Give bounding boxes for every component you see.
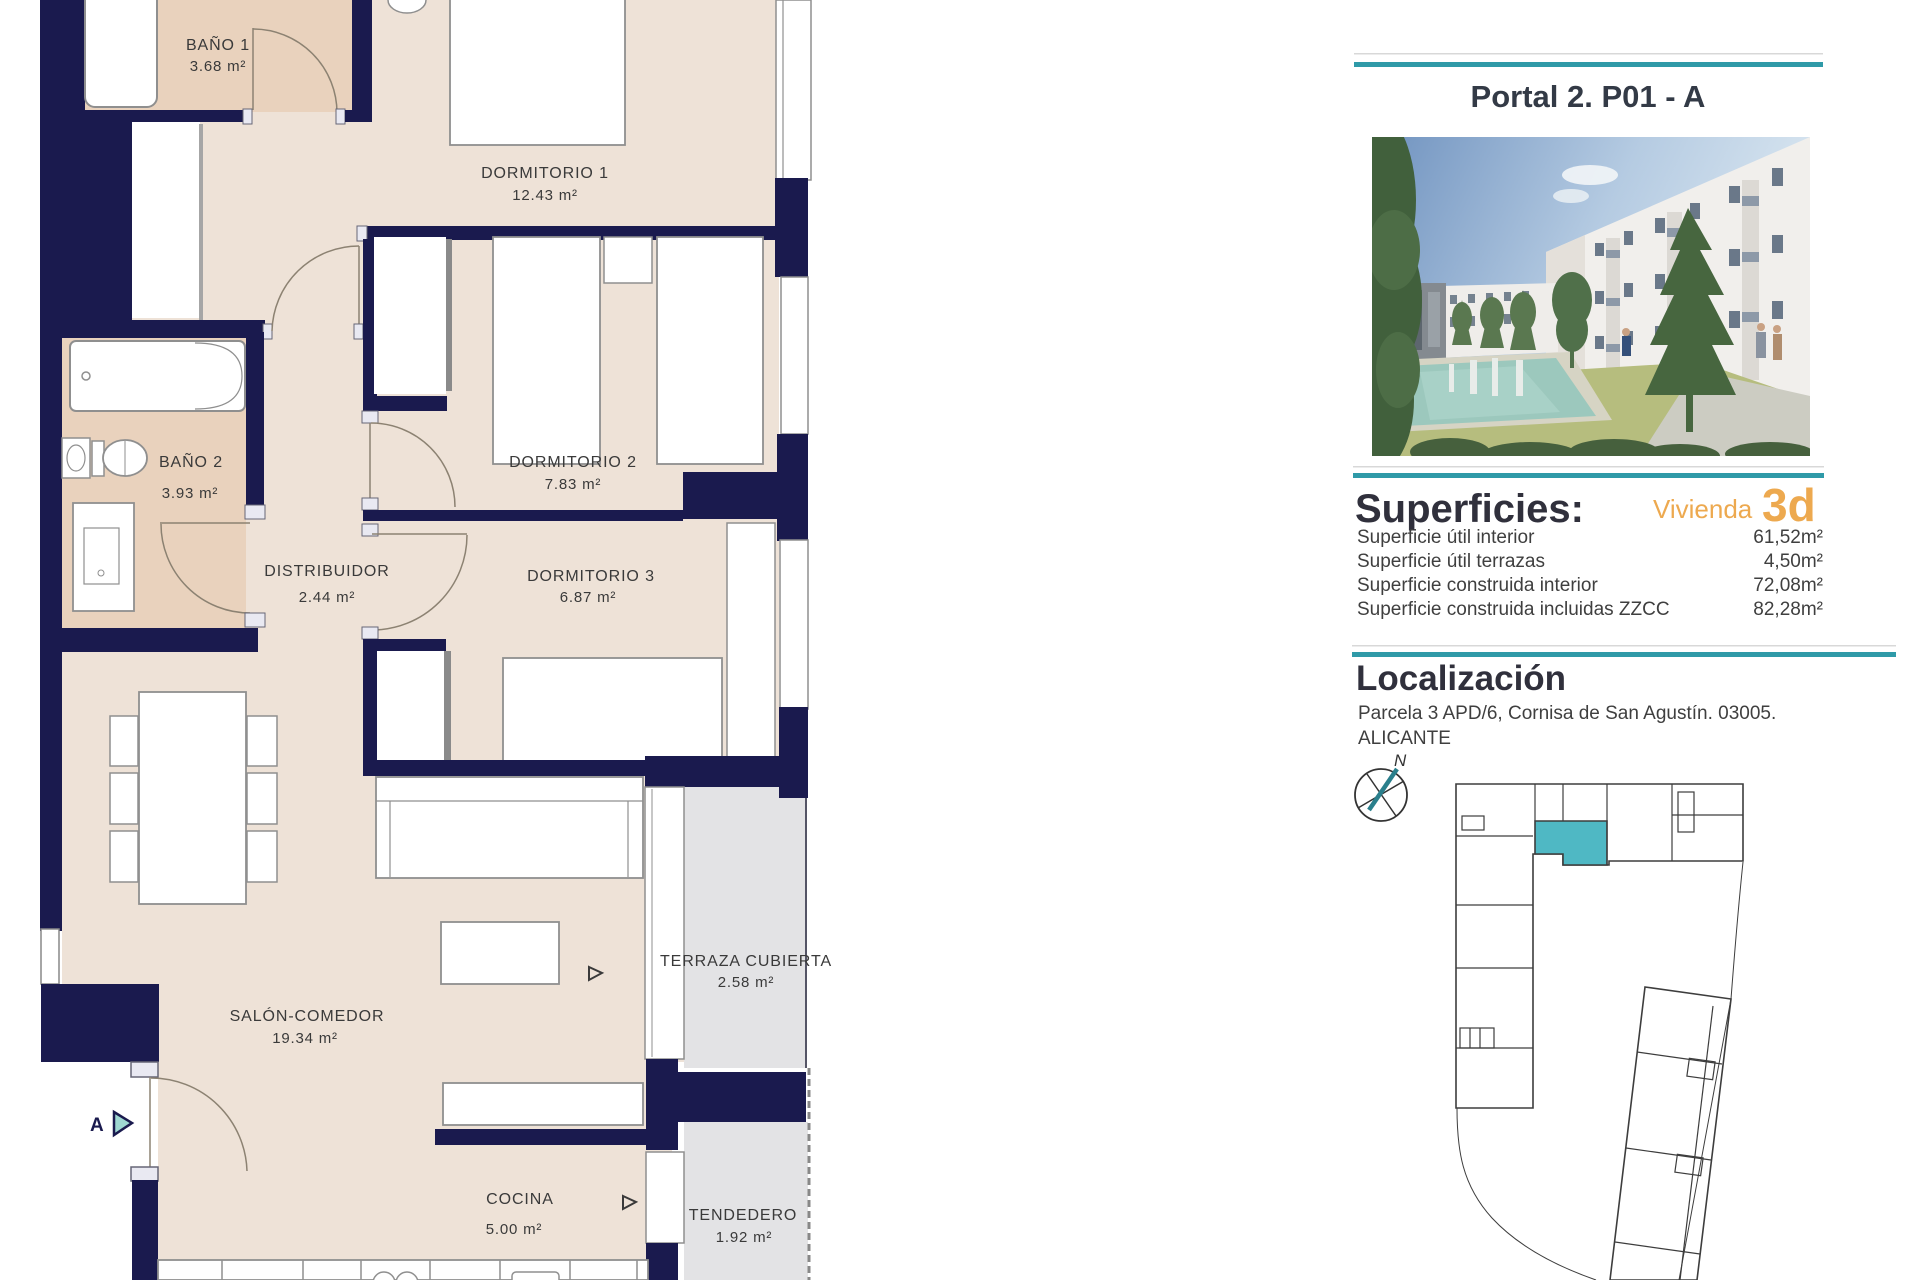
svg-text:3.93 m²: 3.93 m²	[162, 485, 218, 502]
svg-text:Superficie útil interior: Superficie útil interior	[1357, 527, 1535, 548]
svg-text:SALÓN-COMEDOR: SALÓN-COMEDOR	[230, 1006, 385, 1025]
svg-text:19.34 m²: 19.34 m²	[272, 1030, 338, 1047]
svg-text:5.00 m²: 5.00 m²	[486, 1221, 542, 1238]
svg-text:Localización: Localización	[1356, 659, 1566, 698]
svg-text:COCINA: COCINA	[486, 1191, 554, 1208]
svg-text:TERRAZA CUBIERTA: TERRAZA CUBIERTA	[660, 953, 832, 970]
svg-text:Superficie construida incluida: Superficie construida incluidas ZZCC	[1357, 599, 1670, 620]
svg-text:BAÑO 2: BAÑO 2	[159, 451, 223, 471]
svg-text:Parcela 3 APD/6, Cornisa de Sa: Parcela 3 APD/6, Cornisa de San Agustín.…	[1358, 703, 1776, 724]
svg-text:2.58 m²: 2.58 m²	[718, 974, 774, 991]
svg-text:TENDEDERO: TENDEDERO	[689, 1207, 798, 1224]
svg-text:82,28m²: 82,28m²	[1753, 599, 1823, 620]
svg-text:A: A	[90, 1115, 104, 1136]
svg-text:Superficie útil terrazas: Superficie útil terrazas	[1357, 551, 1545, 572]
svg-text:DISTRIBUIDOR: DISTRIBUIDOR	[264, 563, 389, 580]
svg-text:N: N	[1394, 751, 1407, 770]
svg-text:3.68 m²: 3.68 m²	[190, 58, 246, 75]
svg-text:7.83 m²: 7.83 m²	[545, 476, 601, 493]
svg-text:Superficie construida interior: Superficie construida interior	[1357, 575, 1598, 596]
svg-text:BAÑO 1: BAÑO 1	[186, 34, 250, 54]
svg-text:Vivienda: Vivienda	[1653, 494, 1753, 524]
svg-text:ALICANTE: ALICANTE	[1358, 728, 1451, 749]
svg-text:2.44 m²: 2.44 m²	[299, 589, 355, 606]
svg-text:DORMITORIO 3: DORMITORIO 3	[527, 568, 655, 585]
svg-text:6.87 m²: 6.87 m²	[560, 589, 616, 606]
svg-text:1.92 m²: 1.92 m²	[716, 1229, 772, 1246]
svg-text:Superficies:: Superficies:	[1355, 487, 1584, 531]
svg-text:3d: 3d	[1762, 479, 1816, 531]
svg-text:DORMITORIO 1: DORMITORIO 1	[481, 165, 609, 182]
svg-text:61,52m²: 61,52m²	[1753, 527, 1823, 548]
svg-text:Portal 2. P01 - A: Portal 2. P01 - A	[1471, 79, 1706, 114]
svg-text:4,50m²: 4,50m²	[1764, 551, 1823, 572]
svg-text:DORMITORIO 2: DORMITORIO 2	[509, 454, 637, 471]
svg-text:12.43 m²: 12.43 m²	[512, 187, 578, 204]
svg-text:72,08m²: 72,08m²	[1753, 575, 1823, 596]
